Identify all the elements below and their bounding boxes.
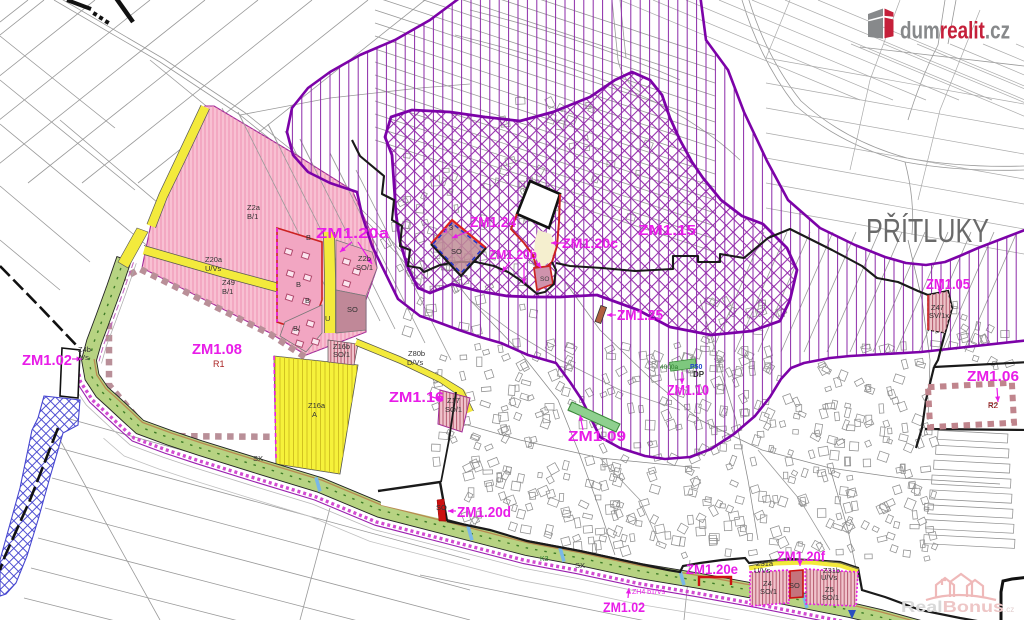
- svg-text:PŘÍTLUKY: PŘÍTLUKY: [866, 212, 989, 249]
- svg-text:Z2a: Z2a: [247, 203, 261, 212]
- svg-text:ZM1.15: ZM1.15: [638, 223, 696, 239]
- svg-text:SO: SO: [451, 247, 462, 256]
- svg-text:ZH4 b1/Vs: ZH4 b1/Vs: [632, 589, 666, 596]
- svg-text:Z49: Z49: [222, 278, 235, 287]
- svg-text:SX: SX: [253, 454, 263, 463]
- svg-text:.cz: .cz: [1004, 605, 1014, 614]
- svg-text:Z80b: Z80b: [408, 349, 425, 358]
- svg-text:ZM1.10: ZM1.10: [667, 383, 709, 399]
- svg-text:DP: DP: [693, 370, 705, 379]
- svg-text:SO: SO: [436, 503, 447, 512]
- svg-text:4000a: 4000a: [660, 364, 678, 371]
- svg-text:U/Vs: U/Vs: [821, 573, 838, 582]
- svg-text:ZM1.24: ZM1.24: [470, 215, 516, 231]
- svg-text:ZM1.05: ZM1.05: [926, 277, 970, 293]
- svg-text:B: B: [296, 280, 301, 289]
- svg-text:Z17: Z17: [447, 396, 460, 405]
- svg-text:3: 3: [449, 223, 453, 232]
- svg-text:SO: SO: [347, 305, 358, 314]
- svg-text:B/: B/: [293, 324, 301, 333]
- svg-text:A: A: [312, 410, 317, 419]
- svg-text:ZM1.06: ZM1.06: [967, 369, 1019, 385]
- svg-text:B/1: B/1: [247, 212, 258, 221]
- svg-text:SO/1: SO/1: [356, 263, 373, 272]
- svg-text:ZM1.20c: ZM1.20c: [562, 236, 619, 251]
- svg-text:SO: SO: [540, 276, 549, 283]
- svg-text:3: 3: [443, 226, 447, 235]
- svg-text:ZM1.20a: ZM1.20a: [316, 226, 390, 242]
- svg-text:/Vs: /Vs: [78, 353, 89, 362]
- svg-text:SO/1: SO/1: [333, 350, 350, 359]
- svg-text:R2: R2: [988, 401, 999, 410]
- svg-text:ZM1.20b: ZM1.20b: [489, 247, 537, 262]
- svg-text:Z2b: Z2b: [358, 254, 371, 263]
- svg-text:SX: SX: [575, 561, 585, 570]
- svg-text:R1: R1: [213, 359, 225, 369]
- svg-text:B/1: B/1: [222, 287, 233, 296]
- svg-text:B: B: [306, 233, 311, 242]
- svg-text:U: U: [325, 314, 330, 323]
- svg-text:Z16a: Z16a: [308, 401, 326, 410]
- svg-text:ZM1.02: ZM1.02: [22, 353, 72, 369]
- svg-text:U/Vs: U/Vs: [205, 264, 222, 273]
- svg-text:ZM1.20d: ZM1.20d: [457, 505, 511, 521]
- svg-text:SO/1: SO/1: [445, 405, 462, 414]
- svg-text:ZM1.25: ZM1.25: [617, 308, 663, 324]
- svg-text:D/Vs: D/Vs: [407, 358, 424, 367]
- svg-text:dumrealit.cz: dumrealit.cz: [900, 18, 1010, 45]
- svg-text:K3: K3: [540, 556, 549, 563]
- svg-text:Z20a: Z20a: [205, 255, 223, 264]
- svg-text:SO/1: SO/1: [760, 587, 777, 596]
- svg-text:ZM1.08: ZM1.08: [192, 342, 242, 358]
- svg-text:U/Vs: U/Vs: [754, 566, 771, 575]
- svg-text:B: B: [305, 296, 310, 305]
- svg-text:ZM1.20e: ZM1.20e: [686, 562, 738, 577]
- svg-text:SO: SO: [789, 581, 800, 590]
- svg-text:ZM1.02: ZM1.02: [603, 600, 645, 615]
- svg-text:SO/1: SO/1: [822, 593, 839, 602]
- svg-text:ZM1.09: ZM1.09: [568, 429, 626, 445]
- svg-text:SV/1x: SV/1x: [929, 311, 949, 320]
- svg-text:RealBonus: RealBonus: [901, 599, 1004, 616]
